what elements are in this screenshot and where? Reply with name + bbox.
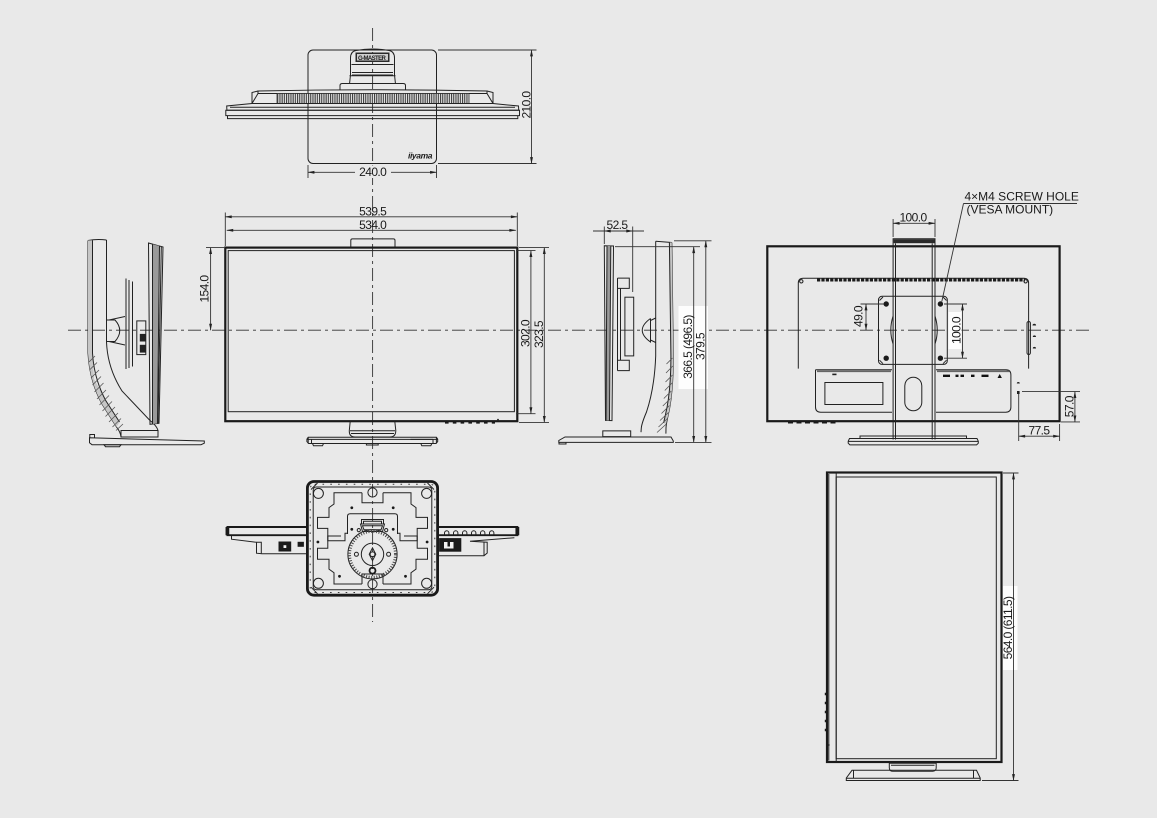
svg-text:49.0: 49.0 (851, 305, 865, 327)
svg-text:539.5: 539.5 (359, 204, 387, 218)
svg-text:323.5: 323.5 (532, 320, 546, 348)
svg-text:iiyama: iiyama (408, 151, 433, 161)
svg-text:100.0: 100.0 (950, 316, 964, 344)
svg-text:52.5: 52.5 (607, 218, 629, 232)
svg-text:(VESA MOUNT): (VESA MOUNT) (967, 203, 1054, 217)
svg-text:302.0: 302.0 (518, 319, 532, 347)
svg-text:210.0: 210.0 (519, 91, 533, 119)
svg-text:77.5: 77.5 (1029, 424, 1051, 438)
svg-text:G-MASTER: G-MASTER (358, 56, 386, 62)
svg-text:57.0: 57.0 (1062, 395, 1076, 417)
svg-text:564.0 (611.5): 564.0 (611.5) (1001, 596, 1015, 659)
svg-text:379.5: 379.5 (693, 332, 707, 360)
svg-text:240.0: 240.0 (359, 165, 387, 179)
svg-text:100.0: 100.0 (899, 211, 927, 225)
svg-text:154.0: 154.0 (197, 275, 211, 303)
svg-text:4×M4 SCREW HOLE: 4×M4 SCREW HOLE (965, 190, 1079, 204)
svg-text:534.0: 534.0 (359, 218, 387, 232)
